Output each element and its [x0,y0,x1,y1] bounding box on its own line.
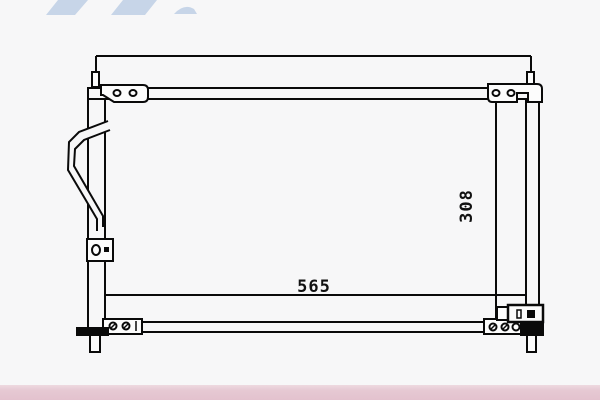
page: 565 308 [0,0,600,400]
bottom-left-flange [77,328,108,335]
dimension-height-label: 308 [457,189,477,223]
mounting-pin-top-left [92,72,99,87]
bracket-stud [104,247,109,252]
dimension-width-label: 565 [297,277,331,297]
fitting-port [527,310,535,318]
condenser-technical-drawing: 565 308 [0,0,600,400]
mounting-pin-bottom-left [90,335,100,352]
mounting-bracket-top-right [488,84,542,102]
mounting-bracket-mid-left [87,239,113,261]
bottom-right-corner-block [521,323,543,335]
mounting-pin-bottom-right [527,335,536,352]
footer-accent-bar [0,385,600,400]
